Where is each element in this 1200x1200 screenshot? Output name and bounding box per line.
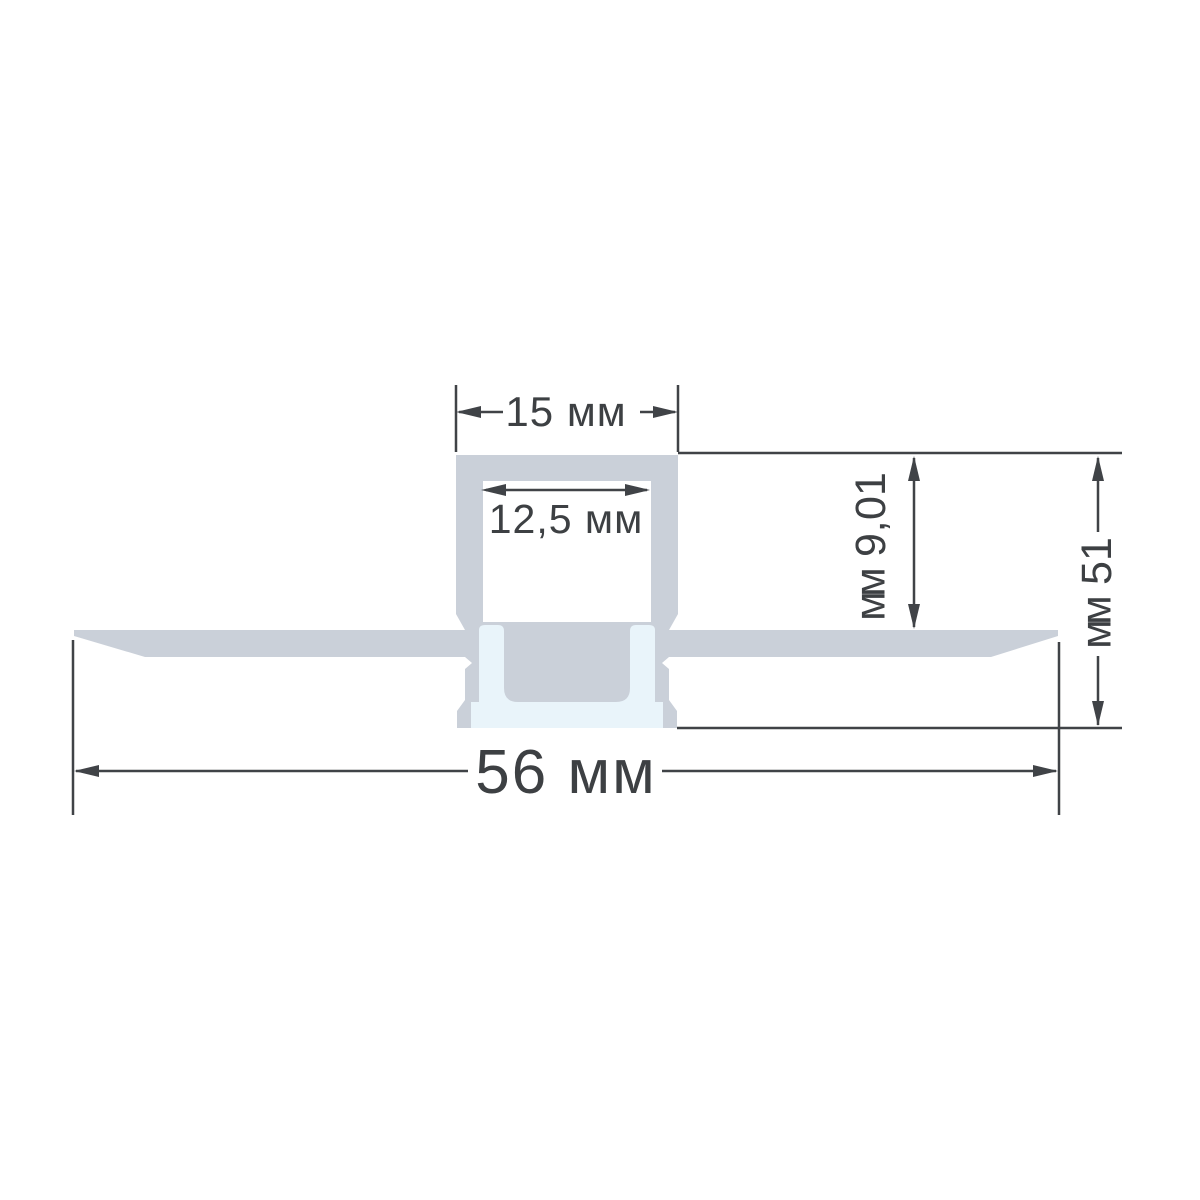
technical-drawing-canvas: 15 мм 12,5 мм 10,9 мм 15 мм 56 мм (0, 0, 1200, 1200)
arrow-overall-left (74, 765, 99, 777)
dim-label-total-height: 15 мм (1074, 537, 1120, 646)
arrow-overall-right (1033, 765, 1058, 777)
arrow-height-up (1092, 456, 1104, 481)
profile-drawing (0, 0, 1200, 1200)
arrow-height-down (1092, 701, 1104, 726)
dim-label-top-width: 15 мм (505, 391, 626, 433)
arrow-depth-up (908, 456, 920, 481)
arrow-top-right (653, 406, 678, 418)
dim-label-inner-depth: 10,9 мм (848, 472, 894, 618)
arrow-top-left (456, 406, 481, 418)
arrow-depth-down (908, 604, 920, 629)
dim-label-inner-width: 12,5 мм (489, 499, 644, 540)
dim-label-overall-width: 56 мм (475, 742, 656, 804)
